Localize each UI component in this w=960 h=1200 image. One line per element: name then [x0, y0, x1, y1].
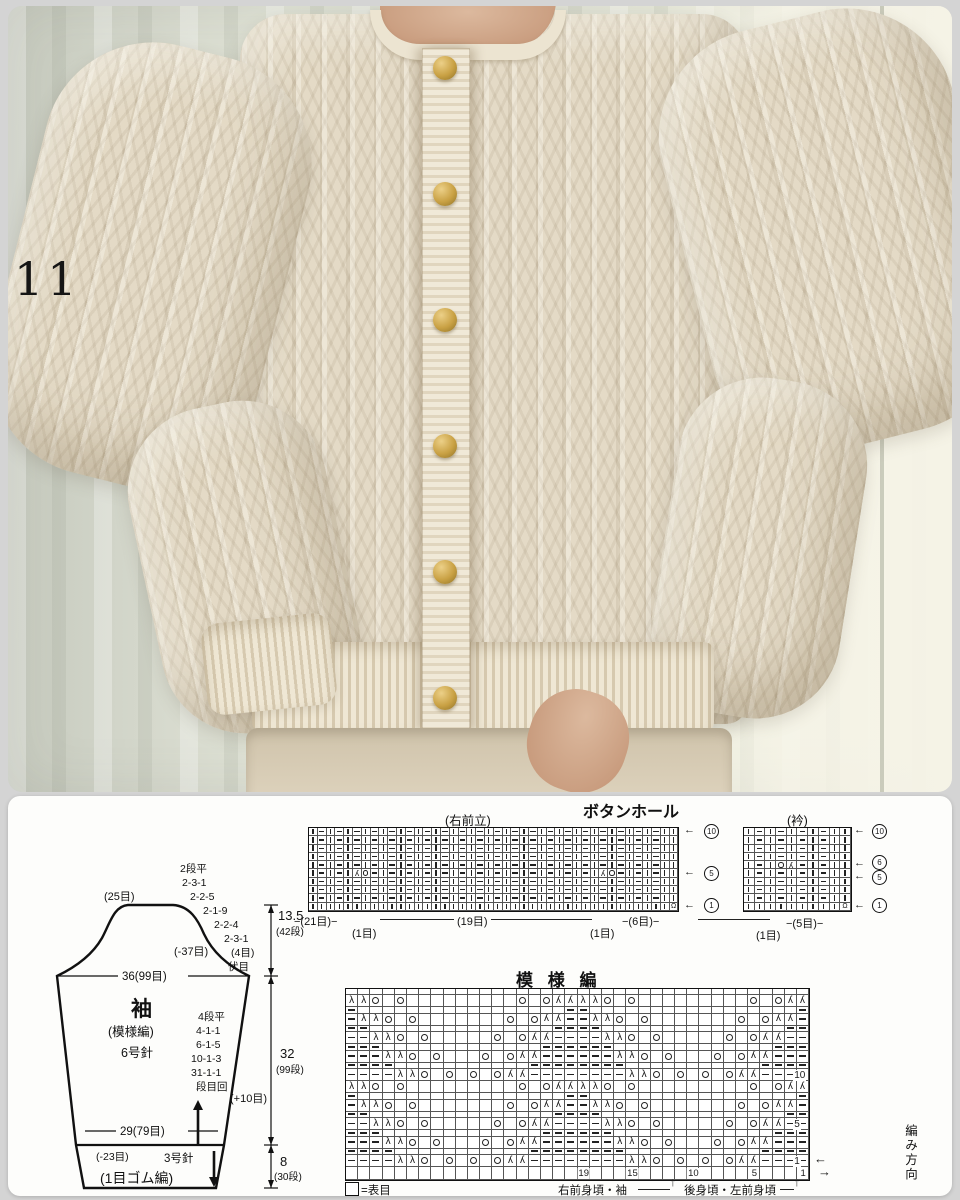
- purl-symbol: [543, 1074, 550, 1076]
- chart-cell: [406, 828, 415, 836]
- chart-cell: [547, 836, 556, 844]
- chart-cell: [395, 1014, 407, 1026]
- right-decrease-symbol: λ: [568, 1082, 573, 1092]
- purl-symbol: [337, 848, 343, 849]
- chart-cell: [353, 853, 362, 861]
- yarnover-symbol: [653, 1034, 660, 1041]
- knit-bar-symbol: [629, 904, 630, 910]
- chart-cell: [797, 1137, 809, 1149]
- chart-cell: [383, 1014, 395, 1026]
- chart-cell: [485, 869, 494, 877]
- knit-bar-symbol: [391, 904, 392, 910]
- chart-cell: [830, 886, 841, 894]
- yarnover-symbol: [470, 1071, 477, 1078]
- right-decrease-symbol: λ: [556, 1014, 561, 1024]
- chart-cell: [444, 1167, 456, 1180]
- chart-cell: [773, 995, 785, 1007]
- purl-symbol: [372, 1074, 379, 1076]
- chart-cell: [760, 1155, 772, 1167]
- pattern-stitch-number: 19: [577, 1168, 590, 1179]
- chart-cell: [494, 878, 503, 886]
- chart-cell: [431, 1167, 443, 1180]
- chart-cell: [591, 894, 600, 902]
- knit-bar-symbol: [365, 887, 366, 893]
- purl-symbol: [360, 1150, 367, 1152]
- chart-cell: [591, 903, 600, 911]
- chart-row: [744, 869, 851, 877]
- chart-cell: [578, 1100, 590, 1112]
- gold-button-icon: [433, 560, 457, 584]
- purl-symbol: [787, 1132, 794, 1134]
- chart-cell: [670, 828, 679, 836]
- purl-symbol: [565, 856, 571, 857]
- purl-symbol: [567, 1123, 574, 1125]
- chart-cell: [617, 894, 626, 902]
- chart-cell: [547, 853, 556, 861]
- plus-stitches: (+10目): [230, 1093, 267, 1105]
- yarnover-symbol: [543, 1083, 550, 1090]
- purl-symbol: [636, 864, 642, 865]
- twisted-stitch-symbol: Ω: [671, 903, 676, 910]
- chart-cell: [467, 886, 476, 894]
- chart-cell: [379, 878, 388, 886]
- knit-bar-symbol: [791, 904, 792, 910]
- knit-bar-symbol: [791, 854, 792, 860]
- knit-bar-symbol: [559, 845, 560, 851]
- yarnover-symbol: [762, 1016, 769, 1023]
- purl-symbol: [778, 897, 784, 898]
- purl-symbol: [354, 881, 360, 882]
- left-decrease-symbol: λ: [349, 996, 354, 1006]
- footer-front-sleeve-label: 右前身頃・袖: [558, 1182, 627, 1198]
- chart-cell: [724, 1081, 736, 1093]
- chart-cell: [503, 828, 512, 836]
- purl-symbol: [787, 1064, 794, 1066]
- chart-cell: [573, 836, 582, 844]
- purl-symbol: [580, 1095, 587, 1097]
- knit-bar-symbol: [471, 904, 472, 910]
- chart-cell: [808, 903, 819, 911]
- yarnover-symbol: [519, 1083, 526, 1090]
- purl-symbol: [636, 839, 642, 840]
- purl-symbol: [592, 1123, 599, 1125]
- purl-symbol: [616, 1064, 623, 1066]
- knit-bar-symbol: [435, 870, 436, 876]
- chart-cell: [327, 894, 336, 902]
- chart-cell: [819, 861, 830, 869]
- collar-row-marker-6: 6: [872, 855, 887, 870]
- chart-cell: [371, 828, 380, 836]
- chart-cell: [797, 1014, 809, 1026]
- purl-symbol: [372, 872, 378, 873]
- chart-cell: [492, 1069, 504, 1081]
- purl-symbol: [495, 831, 501, 832]
- right-decrease-symbol: λ: [544, 1033, 549, 1043]
- chart-cell: [335, 861, 344, 869]
- knit-bar-symbol: [330, 829, 331, 835]
- chart-cell: [485, 853, 494, 861]
- chart-cell: [652, 903, 661, 911]
- knit-bar-symbol: [506, 879, 507, 885]
- chart-cell: [407, 1100, 419, 1112]
- purl-symbol: [592, 1113, 599, 1115]
- purl-symbol: [616, 1074, 623, 1076]
- purl-symbol: [567, 1018, 574, 1020]
- chart-cell: [406, 869, 415, 877]
- knit-bar-symbol: [312, 829, 313, 835]
- purl-symbol: [512, 881, 518, 882]
- purl-symbol: [592, 1037, 599, 1039]
- chart-cell: [675, 1167, 687, 1180]
- dim-body-rows: (99段): [276, 1063, 304, 1076]
- chart-row: [309, 845, 678, 853]
- chart-cell: [661, 886, 670, 894]
- chart-cell: [335, 903, 344, 911]
- chart-cell: [634, 836, 643, 844]
- purl-symbol: [604, 1132, 611, 1134]
- knit-bar-symbol: [629, 829, 630, 835]
- chart-cell: [538, 869, 547, 877]
- purl-symbol: [372, 1064, 379, 1066]
- chart-cell: [467, 861, 476, 869]
- purl-symbol: [360, 1123, 367, 1125]
- chart-cell: [626, 995, 638, 1007]
- chart-cell: [362, 894, 371, 902]
- cuff-decrease: (-23目): [96, 1151, 129, 1163]
- knit-bar-symbol: [488, 829, 489, 835]
- chart-cell: [415, 836, 424, 844]
- knit-bar-symbol: [418, 887, 419, 893]
- knit-bar-symbol: [471, 862, 472, 868]
- collar-row-marker-1: 1: [872, 898, 887, 913]
- left-decrease-symbol: λ: [629, 1156, 634, 1166]
- chart-cell: [675, 1032, 687, 1044]
- purl-symbol: [762, 1150, 769, 1152]
- chart-row: λλλλλλλλ: [346, 1051, 809, 1063]
- chart-cell: [712, 995, 724, 1007]
- chart-cell: [617, 828, 626, 836]
- chart-cell: [419, 1155, 431, 1167]
- purl-symbol: [580, 1064, 587, 1066]
- chart-cell: [529, 1100, 541, 1112]
- knit-bar-symbol: [673, 837, 674, 843]
- chart-cell: λ: [626, 1069, 638, 1081]
- chart-cell: [608, 853, 617, 861]
- purl-symbol: [360, 1074, 367, 1076]
- chart-cell: [406, 878, 415, 886]
- chart-cell: [760, 1081, 772, 1093]
- purl-symbol: [778, 831, 784, 832]
- chart-cell: [397, 836, 406, 844]
- yarnover-symbol: [409, 1053, 416, 1060]
- chart-cell: λ: [565, 1081, 577, 1093]
- gold-button-icon: [433, 56, 457, 80]
- purl-symbol: [555, 1046, 562, 1048]
- chart-cell: λ: [787, 861, 798, 869]
- knit-bar-symbol: [576, 845, 577, 851]
- gold-button-icon: [433, 308, 457, 332]
- chart-cell: [467, 828, 476, 836]
- knit-bar-symbol: [585, 904, 586, 910]
- chart-cell: [776, 886, 787, 894]
- chart-cell: [441, 861, 450, 869]
- chart-cell: [450, 903, 459, 911]
- chart-cell: [547, 869, 556, 877]
- chart-cell: λ: [383, 1118, 395, 1130]
- chart-cell: [651, 995, 663, 1007]
- chart-cell: [327, 845, 336, 853]
- purl-symbol: [512, 831, 518, 832]
- knit-bar-symbol: [770, 829, 771, 835]
- knit-bar-symbol: [515, 904, 516, 910]
- chart-cell: [494, 836, 503, 844]
- chart-cell: [808, 878, 819, 886]
- chart-cell: [415, 894, 424, 902]
- chart-cell: [663, 1081, 675, 1093]
- yarnover-symbol: [641, 1016, 648, 1023]
- chart-cell: [529, 1014, 541, 1026]
- left-decrease-symbol: λ: [581, 1082, 586, 1092]
- chart-cell: λ: [599, 869, 608, 877]
- chart-cell: [318, 886, 327, 894]
- chart-cell: [736, 1032, 748, 1044]
- chart-cell: [383, 1081, 395, 1093]
- yarnover-symbol: [609, 870, 615, 876]
- chart-cell: [379, 903, 388, 911]
- chart-cell: [494, 869, 503, 877]
- left-decrease-symbol: λ: [605, 1033, 610, 1043]
- knit-bar-symbol: [365, 904, 366, 910]
- knit-bar-symbol: [435, 829, 436, 835]
- knit-bar-symbol: [844, 887, 845, 893]
- purl-symbol: [385, 1064, 392, 1066]
- chart-cell: [614, 1167, 626, 1180]
- chart-cell: [663, 1014, 675, 1026]
- knit-bar-symbol: [664, 829, 665, 835]
- purl-symbol: [618, 864, 624, 865]
- purl-symbol: [592, 1027, 599, 1029]
- chart-cell: [520, 903, 529, 911]
- purl-symbol: [372, 1055, 379, 1057]
- chart-cell: [494, 828, 503, 836]
- knit-bar-symbol: [312, 845, 313, 851]
- chart-cell: [787, 869, 798, 877]
- knit-bar-symbol: [400, 895, 401, 901]
- chart-cell: [776, 828, 787, 836]
- chart-cell: [415, 878, 424, 886]
- chart-cell: [492, 995, 504, 1007]
- purl-symbol: [565, 889, 571, 890]
- chart-cell: [699, 995, 711, 1007]
- chart-cell: [370, 995, 382, 1007]
- chart-cell: [639, 1118, 651, 1130]
- knit-bar-symbol: [383, 829, 384, 835]
- purl-symbol: [360, 1064, 367, 1066]
- chart-cell: [388, 836, 397, 844]
- chart-cell: [450, 886, 459, 894]
- purl-symbol: [372, 848, 378, 849]
- inc-header: 段目回: [196, 1080, 228, 1093]
- left-decrease-symbol: λ: [642, 1070, 647, 1080]
- yarnover-symbol: [543, 997, 550, 1004]
- chart-cell: [591, 836, 600, 844]
- knit-bar-symbol: [471, 870, 472, 876]
- purl-symbol: [337, 897, 343, 898]
- chart-cell: [840, 861, 851, 869]
- knit-bar-symbol: [523, 829, 524, 835]
- knit-bar-symbol: [770, 870, 771, 876]
- chart-cell: [819, 903, 830, 911]
- knit-bar-symbol: [541, 829, 542, 835]
- chart-cell: [699, 1137, 711, 1149]
- chart-cell: [760, 1167, 772, 1180]
- knit-bar-symbol: [523, 870, 524, 876]
- purl-symbol: [348, 1113, 355, 1115]
- chart-cell: [529, 1155, 541, 1167]
- chart-cell: [407, 1167, 419, 1180]
- chart-cell: [529, 828, 538, 836]
- chart-cell: [787, 828, 798, 836]
- sweater-button-band: [422, 48, 470, 730]
- chart-cell: [511, 869, 520, 877]
- chart-cell: [480, 1051, 492, 1063]
- chart-cell: [565, 1051, 577, 1063]
- purl-symbol: [555, 1055, 562, 1057]
- chart-cell: λ: [614, 1118, 626, 1130]
- chart-cell: [388, 878, 397, 886]
- chart-cell: [617, 869, 626, 877]
- chart-cell: [591, 845, 600, 853]
- knit-bar-symbol: [347, 854, 348, 860]
- dim-body: 32: [280, 1046, 294, 1061]
- knit-bar-symbol: [673, 879, 674, 885]
- chart-cell: [494, 853, 503, 861]
- knit-bar-symbol: [506, 862, 507, 868]
- yarnover-symbol: [616, 1016, 623, 1023]
- knit-bar-symbol: [647, 879, 648, 885]
- stitch-count-19: (19目): [454, 913, 491, 929]
- chart-cell: [564, 878, 573, 886]
- knit-bar-symbol: [400, 870, 401, 876]
- chart-cell: [663, 1100, 675, 1112]
- chart-cell: [504, 1014, 516, 1026]
- knit-bar-symbol: [576, 870, 577, 876]
- chart-cell: [555, 894, 564, 902]
- right-decrease-symbol: λ: [788, 1100, 793, 1110]
- chart-cell: [480, 1081, 492, 1093]
- chart-cell: [599, 836, 608, 844]
- purl-symbol: [821, 839, 827, 840]
- yarnover-symbol: [494, 1034, 501, 1041]
- purl-symbol: [567, 1104, 574, 1106]
- chart-cell: [467, 853, 476, 861]
- right-decrease-symbol: λ: [532, 1137, 537, 1147]
- purl-symbol: [407, 831, 413, 832]
- knit-bar-symbol: [647, 895, 648, 901]
- chart-cell: [432, 869, 441, 877]
- chart-cell: [407, 1051, 419, 1063]
- knit-bar-symbol: [488, 845, 489, 851]
- model-skirt: [246, 728, 732, 792]
- buttonhole-chart-grid: λλΩ: [308, 827, 679, 912]
- chart-cell: [362, 886, 371, 894]
- chart-cell: [591, 869, 600, 877]
- purl-symbol: [799, 1046, 806, 1048]
- right-decrease-symbol: λ: [776, 1014, 781, 1024]
- chart-cell: [459, 878, 468, 886]
- purl-symbol: [565, 897, 571, 898]
- yarnover-symbol: [738, 1102, 745, 1109]
- chart-cell: λ: [353, 869, 362, 877]
- purl-symbol: [372, 864, 378, 865]
- purl-symbol: [442, 839, 448, 840]
- chart-cell: [626, 828, 635, 836]
- chart-cell: [736, 1167, 748, 1180]
- knit-direction-label: 編み方向: [901, 1124, 920, 1182]
- chart-cell: [547, 861, 556, 869]
- chart-cell: [712, 1081, 724, 1093]
- chart-cell: [785, 1051, 797, 1063]
- chart-cell: [492, 1051, 504, 1063]
- sleeve-name: 袖: [131, 997, 152, 1021]
- chart-cell: [643, 861, 652, 869]
- chart-cell: [699, 1118, 711, 1130]
- chart-cell: [520, 828, 529, 836]
- purl-symbol: [592, 1160, 599, 1162]
- chart-cell: [504, 1051, 516, 1063]
- knit-bar-symbol: [541, 904, 542, 910]
- left-decrease-symbol: λ: [605, 1100, 610, 1110]
- chart-cell: λ: [602, 1118, 614, 1130]
- knit-bar-symbol: [383, 895, 384, 901]
- chart-cell: [335, 828, 344, 836]
- purl-symbol: [512, 889, 518, 890]
- chart-cell: [590, 1155, 602, 1167]
- purl-symbol: [348, 1037, 355, 1039]
- purl-symbol: [543, 1046, 550, 1048]
- chart-cell: [661, 861, 670, 869]
- chart-cell: [663, 1051, 675, 1063]
- knit-bar-symbol: [559, 904, 560, 910]
- chart-cell: [371, 894, 380, 902]
- collar-chart-grid: λΩ: [743, 827, 852, 912]
- purl-symbol: [531, 1150, 538, 1152]
- purl-symbol: [778, 839, 784, 840]
- left-decrease-symbol: λ: [373, 1014, 378, 1024]
- knit-bar-symbol: [834, 845, 835, 851]
- chart-cell: λ: [785, 1081, 797, 1093]
- purl-symbol: [385, 1074, 392, 1076]
- chart-cell: [309, 845, 318, 853]
- chart-cell: [608, 836, 617, 844]
- chart-cell: [634, 861, 643, 869]
- knit-bar-symbol: [471, 879, 472, 885]
- chart-cell: [432, 861, 441, 869]
- chart-cell: [819, 878, 830, 886]
- sleeve-needle: 6号針: [121, 1045, 153, 1060]
- chart-cell: [456, 1081, 468, 1093]
- knit-bar-symbol: [435, 904, 436, 910]
- chart-cell: [529, 894, 538, 902]
- chart-cell: [699, 1167, 711, 1180]
- chart-cell: [643, 869, 652, 877]
- chart-cell: λ: [383, 1032, 395, 1044]
- chart-cell: [573, 853, 582, 861]
- chart-cell: [617, 836, 626, 844]
- purl-symbol: [567, 1055, 574, 1057]
- knit-bar-symbol: [647, 887, 648, 893]
- chart-cell: [538, 836, 547, 844]
